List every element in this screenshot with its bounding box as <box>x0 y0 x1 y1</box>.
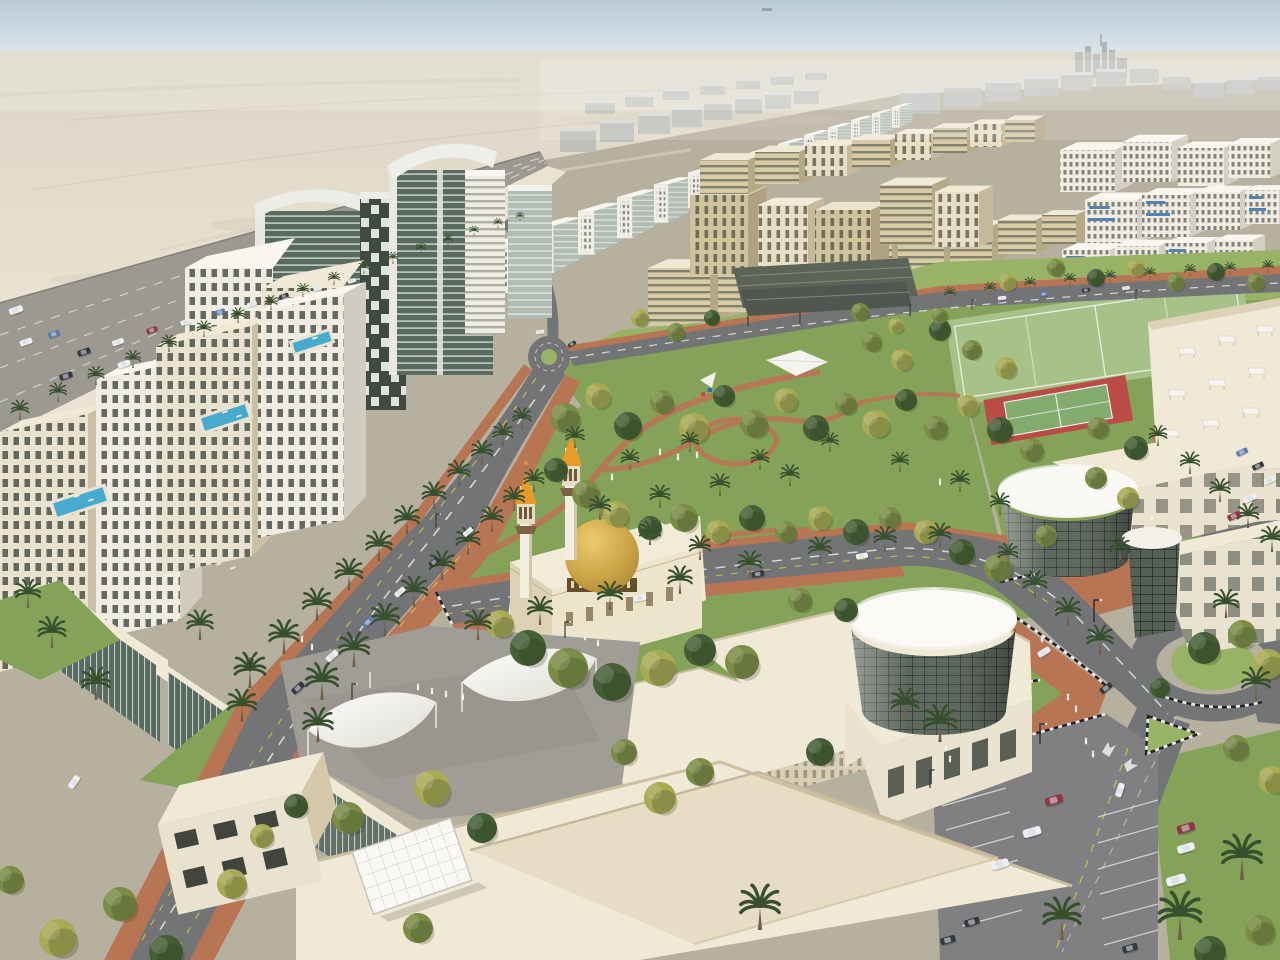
atmospheric-haze <box>0 0 1280 960</box>
city-rendering-image <box>0 0 1280 960</box>
scene-svg <box>0 0 1280 960</box>
